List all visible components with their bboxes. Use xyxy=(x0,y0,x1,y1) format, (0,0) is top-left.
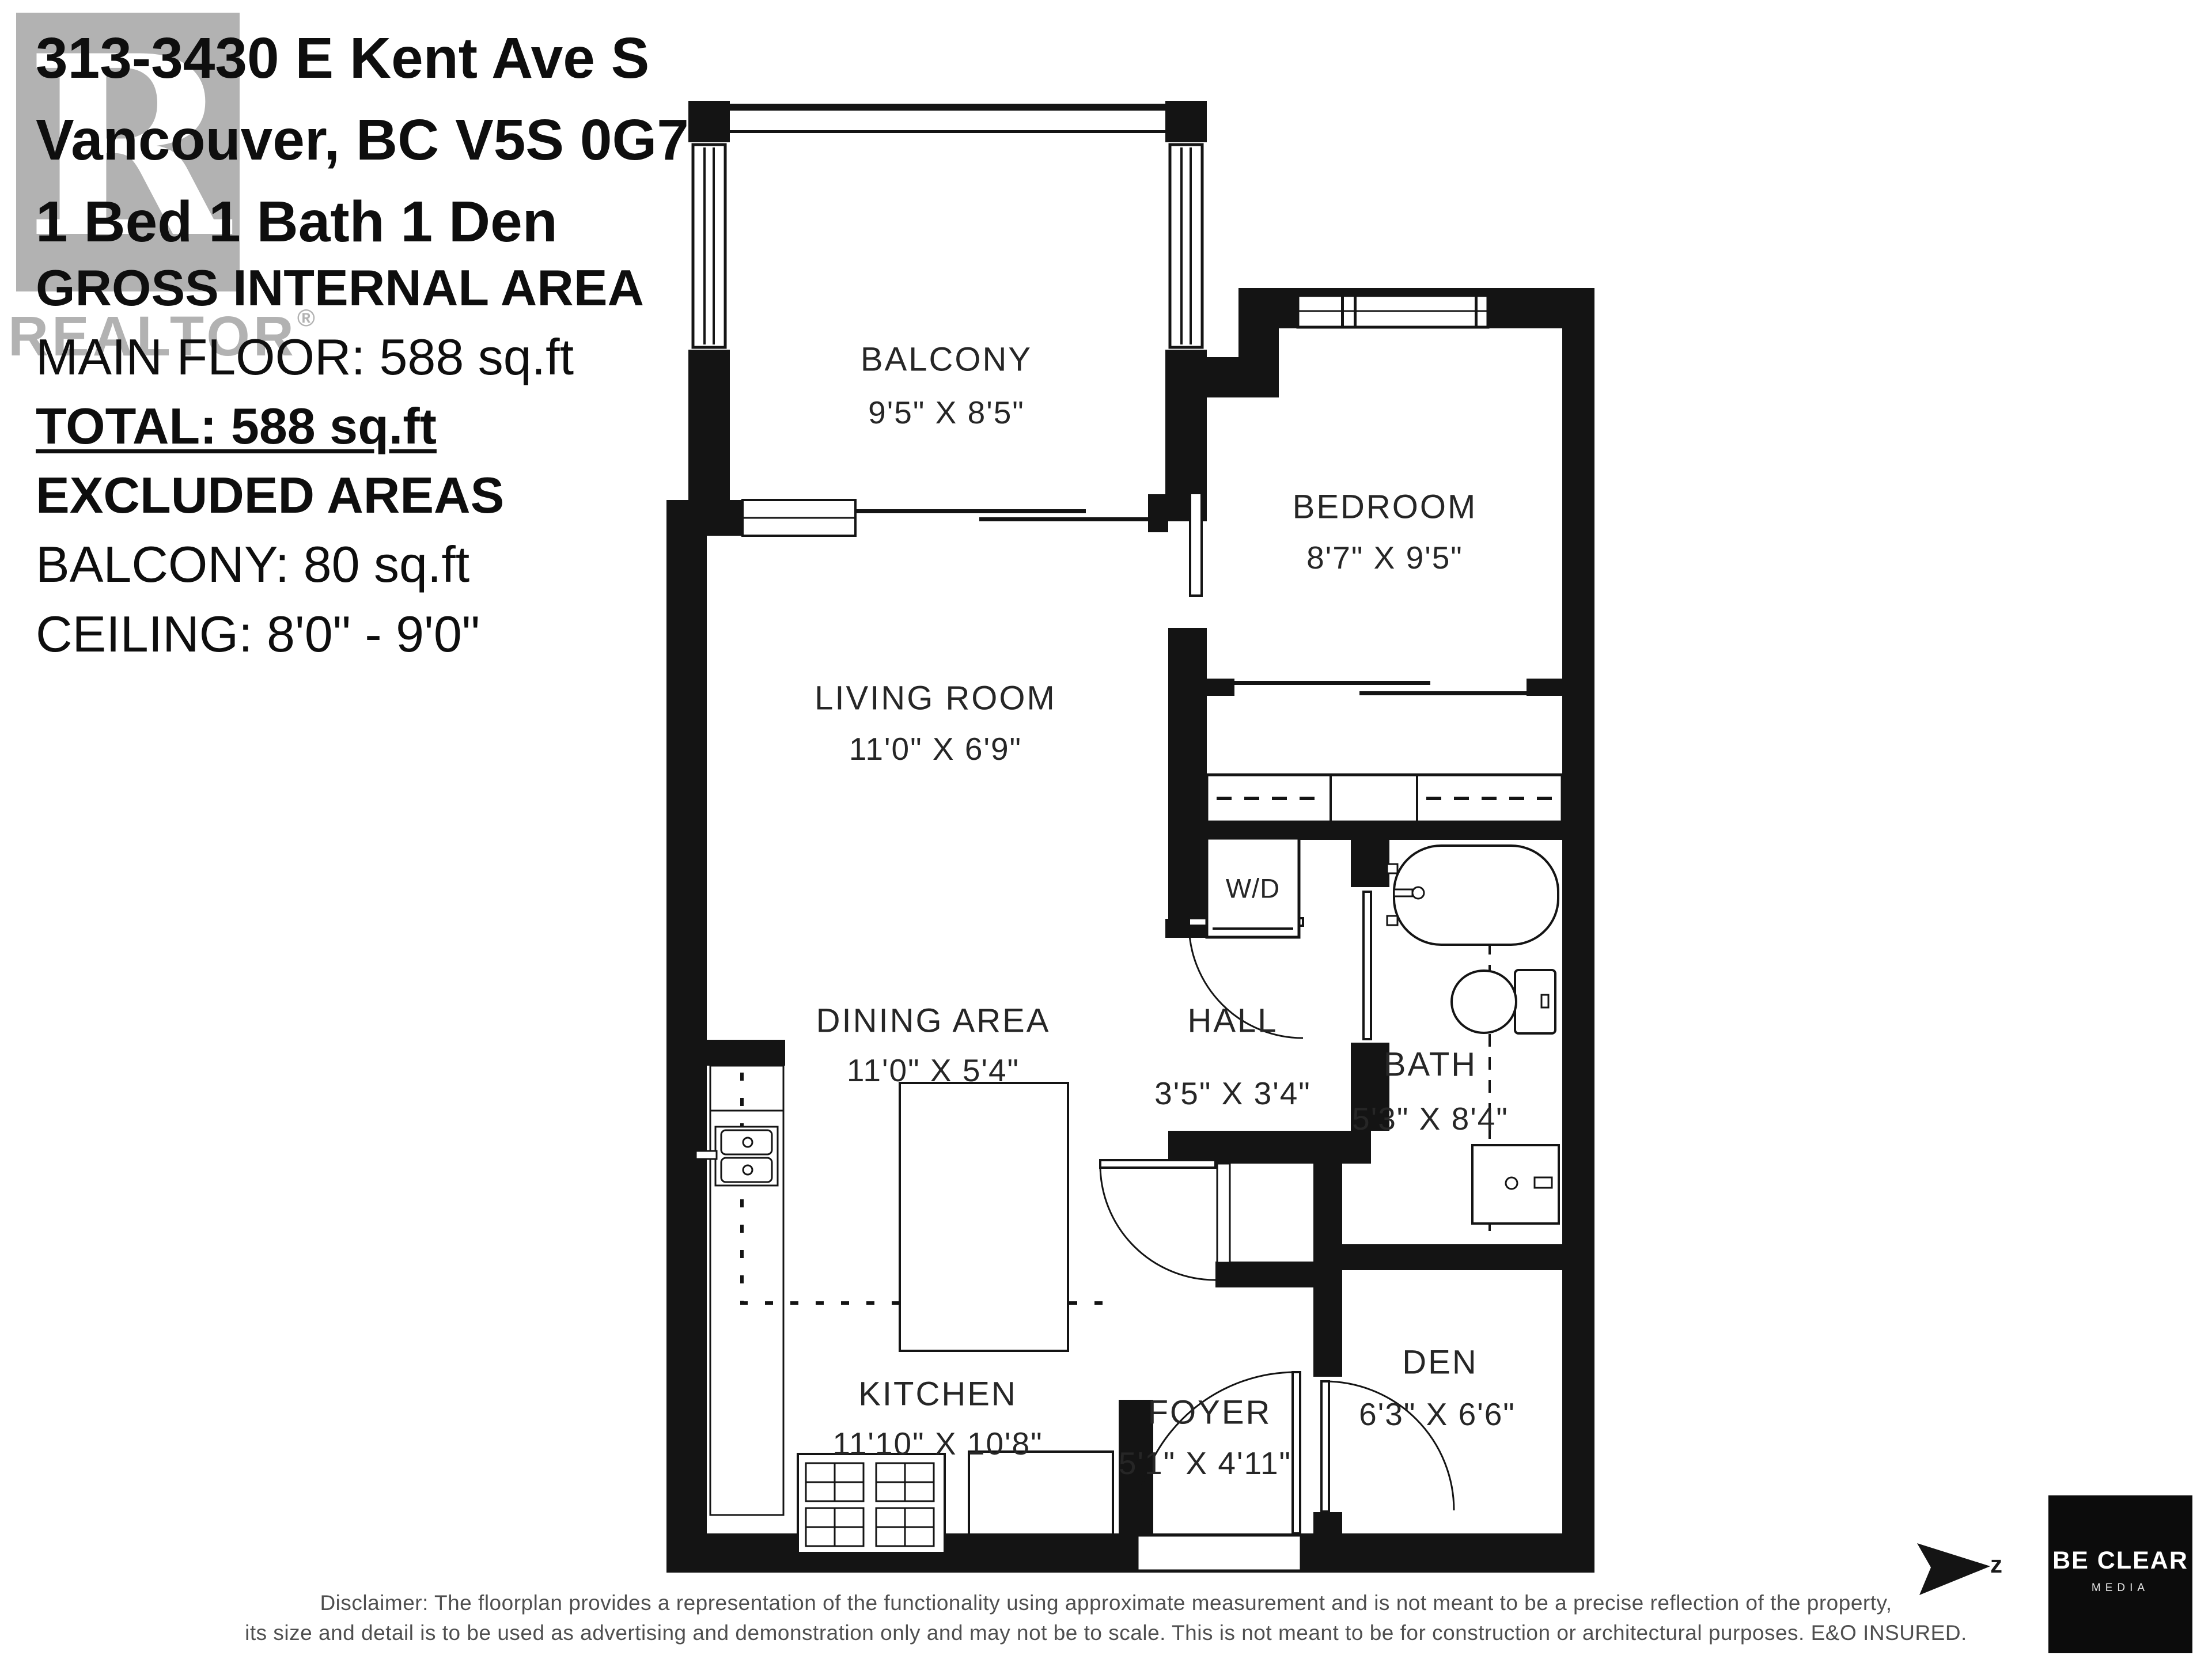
floorplan-page: { "header": { "address_line1": "313-3430… xyxy=(0,0,2212,1659)
living-room-label: LIVING ROOM xyxy=(815,679,1056,718)
hall-label: HALL xyxy=(1187,1002,1278,1040)
kitchen-fixtures xyxy=(696,1066,1113,1553)
kitchen-dims: 11'10" X 10'8" xyxy=(832,1425,1043,1462)
bath-pocket-door xyxy=(1363,892,1371,1039)
kitchen-island xyxy=(900,1083,1068,1351)
balcony-area: BALCONY: 80 sq.ft xyxy=(36,530,644,599)
gross-internal-area-title: GROSS INTERNAL AREA xyxy=(36,253,644,323)
listing-header: 313-3430 E Kent Ave S Vancouver, BC V5S … xyxy=(36,17,689,263)
total-area: TOTAL: 588 sq.ft xyxy=(36,392,644,461)
toilet-icon xyxy=(1452,970,1555,1033)
entry-threshold xyxy=(1138,1536,1301,1570)
entry-door-leaf xyxy=(1293,1372,1300,1533)
logo-line-2: MEDIA xyxy=(2092,1582,2149,1594)
bedroom-door-leaf xyxy=(1190,493,1202,596)
disclaimer-line-2: its size and detail is to be used as adv… xyxy=(0,1621,2212,1645)
bath-label: BATH xyxy=(1384,1046,1477,1084)
kitchen-cabinet xyxy=(969,1452,1113,1535)
living-room-dims: 11'0" X 6'9" xyxy=(849,730,1022,767)
balcony-right-window xyxy=(1170,145,1202,347)
address-line-2: Vancouver, BC V5S 0G7 xyxy=(36,99,689,181)
dining-area-label: DINING AREA xyxy=(816,1002,1051,1040)
disclaimer-line-1: Disclaimer: The floorplan provides a rep… xyxy=(0,1591,2212,1615)
bedroom-closet-slider xyxy=(1234,681,1527,695)
washer-dryer-label: W/D xyxy=(1226,873,1280,904)
den-door-leaf xyxy=(1321,1381,1329,1512)
entry-closet-opening xyxy=(1217,1164,1230,1263)
entry-closet-door-arc xyxy=(1100,1165,1215,1280)
hall-dims: 3'5" X 3'4" xyxy=(1154,1075,1311,1112)
balcony-sliding-door xyxy=(743,500,1168,536)
vanity-sink-icon xyxy=(1472,1145,1559,1224)
bedroom-dims: 8'7" X 9'5" xyxy=(1306,539,1463,576)
entry-closet-door-leaf xyxy=(1100,1160,1215,1168)
balcony-railing xyxy=(693,104,1202,347)
bedroom-window xyxy=(1298,296,1488,327)
area-info: GROSS INTERNAL AREA MAIN FLOOR: 588 sq.f… xyxy=(36,253,644,669)
den-dims: 6'3" X 6'6" xyxy=(1359,1396,1516,1433)
bedroom-closet xyxy=(1207,775,1562,822)
main-floor-area: MAIN FLOOR: 588 sq.ft xyxy=(36,323,644,392)
foyer-label: FOYER xyxy=(1148,1393,1272,1432)
bed-bath-summary: 1 Bed 1 Bath 1 Den xyxy=(36,181,689,263)
balcony-left-window xyxy=(693,145,725,347)
foyer-dims: 5'1" X 4'11" xyxy=(1119,1445,1291,1482)
kitchen-label: KITCHEN xyxy=(858,1375,1017,1414)
north-label: z xyxy=(1990,1551,2002,1578)
be-clear-media-logo: BE CLEAR MEDIA xyxy=(2048,1495,2192,1653)
den-label: DEN xyxy=(1402,1343,1478,1382)
excluded-areas-title: EXCLUDED AREAS xyxy=(36,461,644,530)
logo-line-1: BE CLEAR xyxy=(2052,1547,2188,1575)
dining-area-dims: 11'0" X 5'4" xyxy=(847,1052,1020,1089)
address-line-1: 313-3430 E Kent Ave S xyxy=(36,17,689,99)
stove-icon xyxy=(798,1454,945,1553)
bath-dims: 5'3" X 8'4" xyxy=(1352,1100,1509,1137)
north-arrow-icon xyxy=(1901,1529,2033,1604)
ceiling-height: CEILING: 8'0" - 9'0" xyxy=(36,600,644,669)
bedroom-label: BEDROOM xyxy=(1293,488,1478,527)
bath-fixtures xyxy=(1387,846,1559,1238)
balcony-dims: 9'5" X 8'5" xyxy=(868,394,1025,431)
kitchen-sink-icon xyxy=(696,1127,778,1185)
balcony-label: BALCONY xyxy=(861,340,1032,379)
